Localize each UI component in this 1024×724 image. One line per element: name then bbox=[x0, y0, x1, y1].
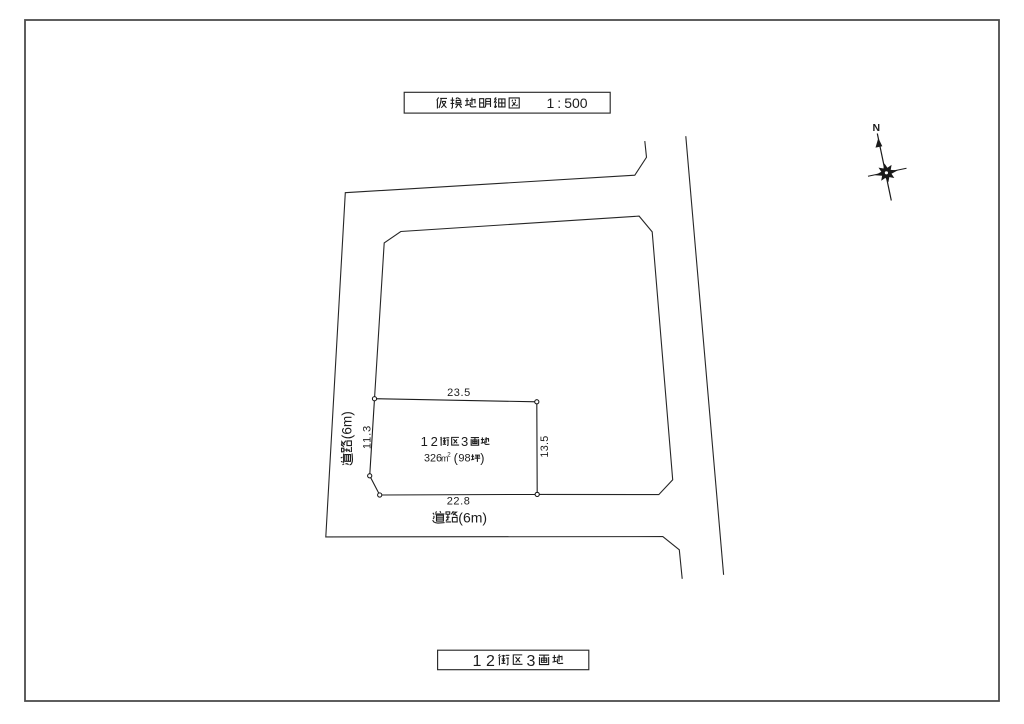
svg-text:): ) bbox=[480, 451, 484, 465]
svg-text:11.3: 11.3 bbox=[361, 425, 373, 449]
svg-text:98: 98 bbox=[458, 453, 470, 465]
svg-text:2: 2 bbox=[447, 451, 451, 458]
svg-text:3: 3 bbox=[526, 653, 535, 670]
svg-text:3: 3 bbox=[461, 434, 468, 449]
svg-text:13.5: 13.5 bbox=[539, 435, 551, 457]
svg-text:1: 1 bbox=[421, 434, 428, 449]
svg-text:326: 326 bbox=[424, 453, 442, 465]
svg-text:N: N bbox=[873, 122, 881, 134]
svg-text:22.8: 22.8 bbox=[447, 495, 471, 507]
svg-text:23.5: 23.5 bbox=[447, 387, 471, 399]
svg-text:(6m): (6m) bbox=[340, 411, 355, 439]
svg-text:2: 2 bbox=[486, 653, 495, 670]
svg-text:2: 2 bbox=[431, 434, 438, 449]
svg-text:1: 1 bbox=[472, 653, 481, 670]
svg-text:(6m): (6m) bbox=[458, 509, 487, 525]
svg-text:1:500: 1:500 bbox=[547, 95, 588, 111]
